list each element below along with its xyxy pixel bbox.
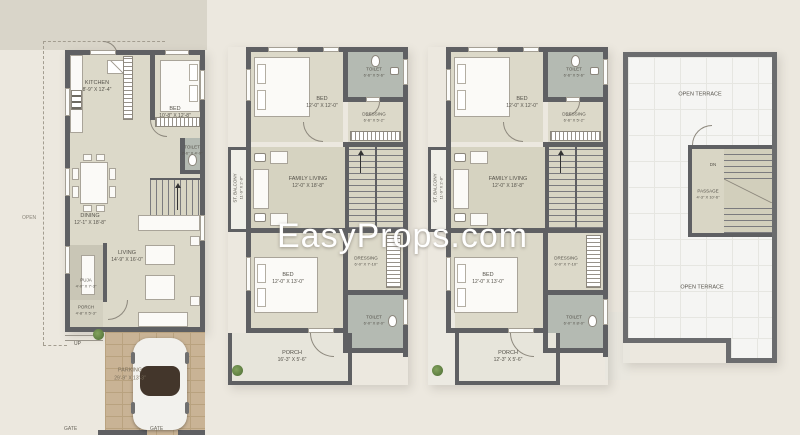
staircase-flight: [377, 147, 403, 228]
dining-chair: [72, 168, 79, 180]
plant-icon: [93, 329, 104, 340]
dining-table: [80, 162, 108, 204]
porch-wall: [228, 381, 352, 385]
washbasin-icon: [254, 213, 266, 222]
room-label-bed-top: BED12'-0" X 12'-0": [506, 96, 538, 110]
sofa: [138, 215, 200, 231]
stair-arrow-stem: [360, 155, 361, 173]
room-label-bed: BED10'-8" X 12'-8": [159, 106, 191, 120]
toilet-icon: [388, 315, 397, 327]
car-wheel: [185, 402, 189, 414]
wall: [623, 338, 731, 343]
wall: [726, 358, 777, 363]
pillow: [457, 264, 466, 283]
wall: [180, 170, 205, 174]
plot-boundary-dashed-bottom: [43, 345, 67, 346]
passage-wall: [688, 145, 772, 149]
window: [200, 215, 205, 241]
car-wheel: [131, 402, 135, 414]
dining-chair: [83, 205, 92, 212]
dining-chair: [83, 154, 92, 161]
sofa: [138, 312, 188, 327]
room-label-dressing-bottom: DRESSING6'-0" X 7'-10": [354, 255, 378, 266]
stair-direction-arrow: [358, 150, 364, 155]
toilet-icon: [188, 154, 197, 166]
pillow: [457, 90, 466, 110]
gate-wall: [98, 430, 147, 435]
staircase-flight: [724, 203, 772, 233]
bed-icon: [160, 60, 200, 112]
wall: [623, 52, 777, 57]
room-label-porch: PORCH12'-3" X 5'-6": [494, 350, 523, 364]
bed-icon: [454, 57, 510, 117]
window: [403, 299, 408, 325]
armchair: [270, 151, 288, 164]
pillow: [457, 288, 466, 307]
staircase-flight: [577, 147, 603, 228]
staircase-flight: [724, 149, 772, 179]
dining-chair: [96, 154, 105, 161]
window: [165, 50, 189, 55]
room-label-toilet-bottom: TOILET6'-0" X 8'-0": [364, 314, 385, 325]
wall: [343, 348, 408, 353]
gate-label-left: GATE: [64, 426, 77, 432]
label-open-terrace-top: OPEN TERRACE: [678, 91, 721, 98]
window: [468, 47, 498, 52]
washbasin-icon: [254, 153, 266, 162]
label-open-terrace-bottom: OPEN TERRACE: [680, 284, 723, 291]
wall: [150, 50, 155, 120]
porch-wall: [455, 333, 459, 385]
room-label-dressing-bottom: DRESSING6'-0" X 7'-10": [554, 255, 578, 266]
wall: [772, 52, 777, 363]
pillow: [457, 64, 466, 84]
room-label-toilet-bottom: TOILET6'-0" X 8'-0": [564, 314, 585, 325]
sofa: [453, 169, 469, 209]
open-terrace-floor-ext: [731, 338, 772, 358]
stair-stringer: [575, 147, 577, 228]
room-label-living: LIVING14'-9" X 16'-0": [111, 250, 143, 264]
window: [603, 59, 608, 85]
porch-wall: [348, 333, 352, 385]
pillow: [257, 264, 266, 283]
floor-plan-ground: KITCHEN8'-9" X 12'-4" BED10'-8" X 12'-8"…: [65, 50, 205, 332]
wall: [343, 290, 408, 295]
room-label-st-balcony: ST. BALCONY11'-9" X 2'-8": [232, 173, 243, 202]
passage-wall: [688, 145, 692, 237]
washbasin-icon: [590, 67, 599, 75]
wall: [543, 348, 608, 353]
window: [90, 50, 116, 55]
floor-plan-terrace: OPEN TERRACE DN PASSAGE4'-3" X 10'-6" OP…: [623, 52, 777, 363]
stair-direction-arrow: [175, 183, 181, 188]
pillow: [257, 288, 266, 307]
toilet-icon: [371, 55, 380, 67]
gate-wall: [178, 430, 205, 435]
window: [200, 70, 205, 100]
armchair: [470, 151, 488, 164]
kitchen-cupboard: [123, 56, 133, 120]
wall: [543, 52, 548, 102]
sofa-seat: [145, 245, 175, 265]
room-label-family-living: FAMILY LIVING12'-0" X 18'-8": [289, 176, 328, 190]
sofa: [253, 169, 269, 209]
up-label: UP: [74, 341, 81, 347]
room-label-bed-bottom: BED12'-0" X 13'-0": [472, 272, 504, 286]
window: [246, 69, 251, 101]
balcony-wall: [228, 147, 231, 232]
puja-altar: [81, 255, 95, 295]
pillow: [257, 64, 266, 84]
room-label-passage: PASSAGE4'-3" X 10'-6": [696, 188, 719, 199]
stair-arrow-stem: [177, 188, 178, 210]
room-label-kitchen: KITCHEN8'-9" X 12'-4": [83, 80, 112, 94]
wall: [103, 243, 107, 302]
staircase-flight: [549, 147, 575, 228]
dining-chair: [72, 186, 79, 198]
toilet-icon: [571, 55, 580, 67]
plant-icon: [232, 365, 243, 376]
stair-direction-arrow: [558, 150, 564, 155]
staircase-flight: [349, 147, 375, 228]
passage-wall: [688, 233, 772, 237]
window: [65, 168, 70, 196]
window: [403, 59, 408, 85]
wall: [623, 52, 628, 343]
dining-chair: [109, 168, 116, 180]
porch-wall: [455, 381, 560, 385]
room-label-bed-top: BED12'-0" X 12'-0": [306, 96, 338, 110]
floor-plan-sheet: { "watermark": {"text": "EasyProps.com",…: [0, 0, 800, 435]
floor-plan-second: BED12'-0" X 12'-0" TOILET6'-6" X 5'-6" D…: [428, 47, 608, 385]
room-label-dressing-top: DRESSING6'-6" X 5'-2": [562, 111, 586, 122]
stair-stringer: [375, 147, 377, 228]
gate-label-right: GATE: [150, 426, 163, 432]
wall: [543, 290, 608, 295]
porch-wall: [228, 333, 232, 385]
plant-icon: [432, 365, 443, 376]
porch-step-line: [65, 340, 103, 341]
room-label-toilet-top: TOILET6'-6" X 5'-6": [364, 66, 385, 77]
wardrobe: [350, 131, 401, 141]
room-label-porch: PORCH16'-3" X 5'-6": [278, 350, 307, 364]
pillow: [189, 64, 198, 81]
room-label-bed-bottom: BED12'-0" X 13'-0": [272, 272, 304, 286]
room-label-family-living: FAMILY LIVING12'-0" X 18'-8": [489, 176, 528, 190]
washbasin-icon: [454, 153, 466, 162]
wardrobe: [586, 235, 601, 288]
pillow: [257, 90, 266, 110]
porch-wall: [556, 333, 560, 385]
stove-icon: [71, 90, 82, 110]
floor-plan-first: BED12'-0" X 12'-0" TOILET6'-6" X 5'-6" D…: [228, 47, 408, 385]
window: [446, 257, 451, 291]
wall: [343, 52, 348, 102]
window: [268, 47, 298, 52]
stair-arrow-stem: [560, 155, 561, 173]
dining-chair: [109, 186, 116, 198]
pillow: [189, 85, 198, 102]
balcony-wall: [228, 229, 246, 232]
washbasin-icon: [390, 67, 399, 75]
window: [603, 299, 608, 325]
room-label-porch: PORCH4'-8" X 5'-3": [76, 304, 97, 315]
room-label-parking: PARKING29'-9" X 13'-3": [114, 368, 146, 383]
wardrobe: [550, 131, 601, 141]
sofa-seat: [145, 275, 175, 300]
room-label-toilet-top: TOILET6'-6" X 5'-6": [564, 66, 585, 77]
toilet-icon: [588, 315, 597, 327]
window: [523, 47, 539, 52]
window: [246, 257, 251, 291]
parking-area: PARKING29'-9" X 13'-3": [105, 332, 205, 435]
room-label-dining: DINING12'-1" X 18'-8": [74, 213, 106, 227]
watermark: EasyProps.com: [277, 217, 528, 256]
car-wheel: [185, 352, 189, 364]
side-table: [190, 296, 200, 306]
car-icon: [133, 338, 187, 430]
dining-chair: [96, 205, 105, 212]
car-wheel: [131, 352, 135, 364]
window: [446, 69, 451, 101]
open-space-label: OPEN: [22, 215, 36, 221]
side-table: [190, 236, 200, 246]
room-label-dressing-top: DRESSING6'-6" X 5'-2": [362, 111, 386, 122]
room-label-puja: PUJA4'-0" X 7'-3": [76, 277, 97, 288]
room-label-st-balcony: ST. BALCONY11'-9" X 2'-8": [432, 173, 443, 202]
window: [323, 47, 339, 52]
bed-icon: [254, 57, 310, 117]
room-label-toilet: TOILET2'-6" X 4'-0": [182, 144, 203, 155]
stair-landing: [724, 179, 772, 203]
label-dn: DN: [710, 162, 717, 168]
